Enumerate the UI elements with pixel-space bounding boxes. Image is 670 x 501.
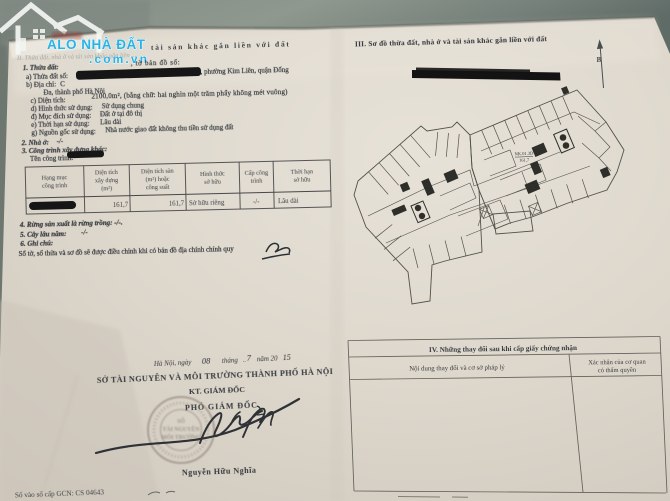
svg-text:SỐ: SỐ (177, 417, 185, 425)
svg-text:Nội dung thay đổi và cơ sở phá: Nội dung thay đổi và cơ sở pháp lý (409, 364, 505, 372)
svg-text:năm 20: năm 20 (257, 354, 279, 363)
svg-text:, tờ bản đồ số:: , tờ bản đồ số: (131, 58, 180, 67)
svg-text:08: 08 (202, 355, 212, 365)
svg-text:TÀI NGUYÊN: TÀI NGUYÊN (163, 425, 201, 433)
svg-text:Hạng mục: Hạng mục (42, 174, 68, 182)
svg-text:B: B (597, 56, 602, 64)
svg-text:(m²): (m²) (101, 185, 112, 192)
svg-text:trình: trình (251, 178, 264, 185)
svg-text:g) Nguồn gốc sử dụng:: g) Nguồn gốc sử dụng: (31, 127, 96, 137)
svg-text:C: C (60, 80, 65, 88)
svg-text:Xác nhận của cơ quan: Xác nhận của cơ quan (588, 359, 646, 367)
svg-text:(m²) hoặc: (m²) hoặc (145, 176, 169, 184)
svg-text:ALO NHÀ ĐẤT: ALO NHÀ ĐẤT (47, 37, 146, 52)
svg-text:có thẩm quyền: có thẩm quyền (598, 367, 637, 375)
svg-text:Diện tích sàn: Diện tích sàn (141, 168, 174, 176)
svg-text:5. Cây lâu năm:: 5. Cây lâu năm: (20, 230, 66, 239)
svg-text:xây dựng: xây dựng (95, 177, 118, 185)
svg-text:công trình: công trình (42, 182, 68, 190)
svg-text:Hình thức: Hình thức (200, 170, 225, 178)
svg-text:công suất: công suất (146, 184, 170, 192)
svg-text:Sở hữu riêng: Sở hữu riêng (189, 199, 225, 207)
svg-text:Cấp công: Cấp công (245, 169, 269, 177)
svg-text:Tên công trình:: Tên công trình: (30, 154, 73, 163)
svg-text:6. Ghi chú:: 6. Ghi chú: (20, 239, 53, 248)
svg-text:161,7: 161,7 (113, 202, 129, 209)
svg-text:Diện tích: Diện tích (95, 169, 119, 177)
svg-text:161,7: 161,7 (169, 200, 185, 207)
svg-text:sở hữu: sở hữu (204, 179, 221, 186)
svg-text:-/-: -/- (253, 199, 260, 206)
svg-text:sở hữu: sở hữu (294, 176, 311, 183)
svg-text:-/-: -/- (81, 228, 88, 236)
svg-text:-/-: -/- (56, 137, 63, 145)
svg-text:tháng: tháng (222, 356, 239, 365)
svg-text:Thời hạn: Thời hạn (291, 168, 314, 176)
svg-text:1. Thửa đất:: 1. Thửa đất: (23, 63, 59, 72)
svg-text:15: 15 (283, 353, 291, 362)
svg-text:NK.01.3D: NK.01.3D (514, 151, 534, 157)
svg-text:Lâu dài: Lâu dài (278, 198, 299, 205)
